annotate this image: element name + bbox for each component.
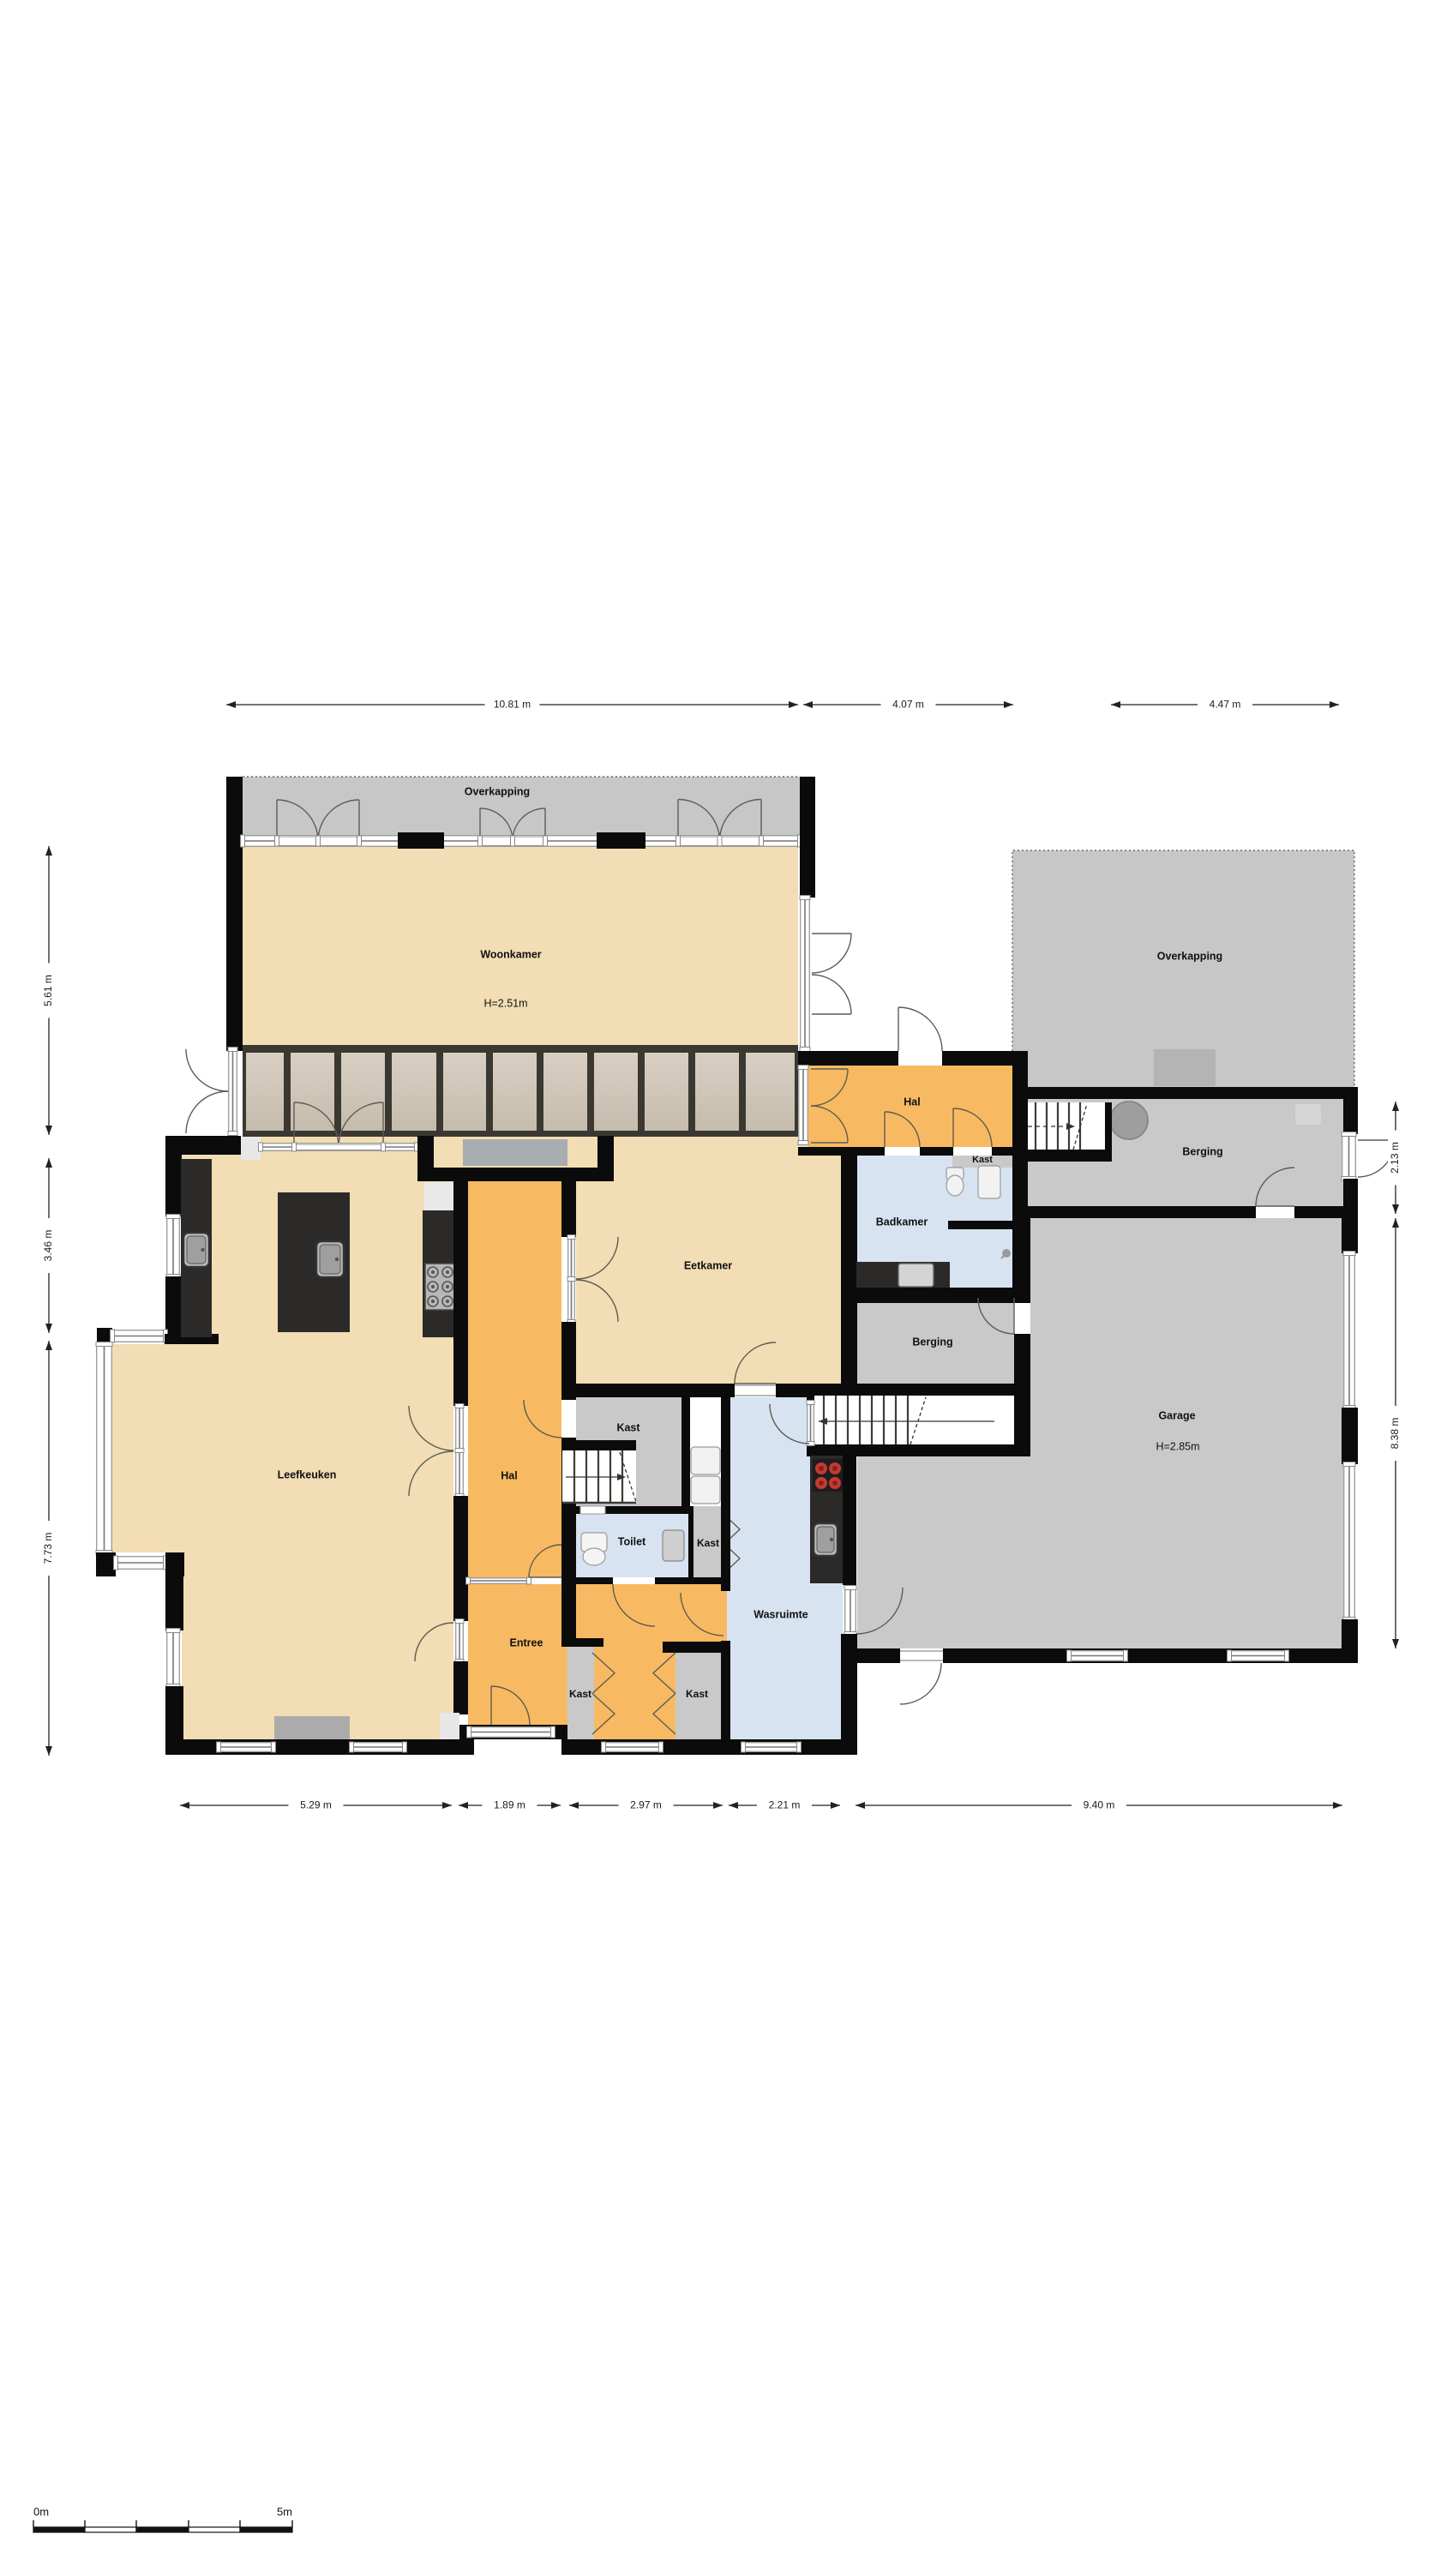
- svg-text:Overkapping: Overkapping: [1157, 950, 1222, 962]
- svg-text:7.73 m: 7.73 m: [42, 1533, 54, 1564]
- svg-text:4.07 m: 4.07 m: [892, 699, 924, 711]
- svg-text:Toilet: Toilet: [618, 1535, 646, 1547]
- svg-text:Entree: Entree: [510, 1636, 543, 1648]
- svg-text:Berging: Berging: [1182, 1145, 1222, 1157]
- svg-text:9.40 m: 9.40 m: [1084, 1799, 1115, 1811]
- svg-text:5m: 5m: [277, 2505, 292, 2518]
- svg-text:3.46 m: 3.46 m: [42, 1230, 54, 1262]
- svg-text:2.97 m: 2.97 m: [630, 1799, 662, 1811]
- svg-text:Leefkeuken: Leefkeuken: [278, 1468, 337, 1480]
- svg-text:Kast: Kast: [569, 1688, 591, 1700]
- svg-text:1.89 m: 1.89 m: [494, 1799, 525, 1811]
- svg-text:Hal: Hal: [904, 1096, 920, 1108]
- svg-text:Kast: Kast: [697, 1537, 719, 1549]
- svg-text:10.81 m: 10.81 m: [494, 699, 531, 711]
- svg-text:Woonkamer: Woonkamer: [480, 948, 541, 960]
- svg-text:5.29 m: 5.29 m: [300, 1799, 332, 1811]
- svg-text:Eetkamer: Eetkamer: [684, 1259, 732, 1271]
- svg-text:Wasruimte: Wasruimte: [754, 1608, 808, 1620]
- svg-text:4.47 m: 4.47 m: [1210, 699, 1241, 711]
- svg-text:Overkapping: Overkapping: [465, 785, 530, 797]
- svg-text:Berging: Berging: [912, 1336, 952, 1348]
- svg-text:H=2.85m: H=2.85m: [1156, 1440, 1199, 1452]
- svg-text:Kast: Kast: [616, 1421, 640, 1433]
- svg-text:2.13 m: 2.13 m: [1389, 1142, 1401, 1174]
- svg-text:Badkamer: Badkamer: [876, 1216, 928, 1228]
- svg-text:Kast: Kast: [686, 1688, 708, 1700]
- svg-text:Kast: Kast: [972, 1155, 993, 1165]
- svg-text:H=2.51m: H=2.51m: [483, 997, 527, 1009]
- svg-text:0m: 0m: [33, 2505, 49, 2518]
- svg-text:8.38 m: 8.38 m: [1389, 1418, 1401, 1450]
- svg-text:Hal: Hal: [501, 1469, 517, 1481]
- svg-text:5.61 m: 5.61 m: [42, 975, 54, 1006]
- svg-text:2.21 m: 2.21 m: [769, 1799, 801, 1811]
- svg-text:Garage: Garage: [1158, 1409, 1195, 1421]
